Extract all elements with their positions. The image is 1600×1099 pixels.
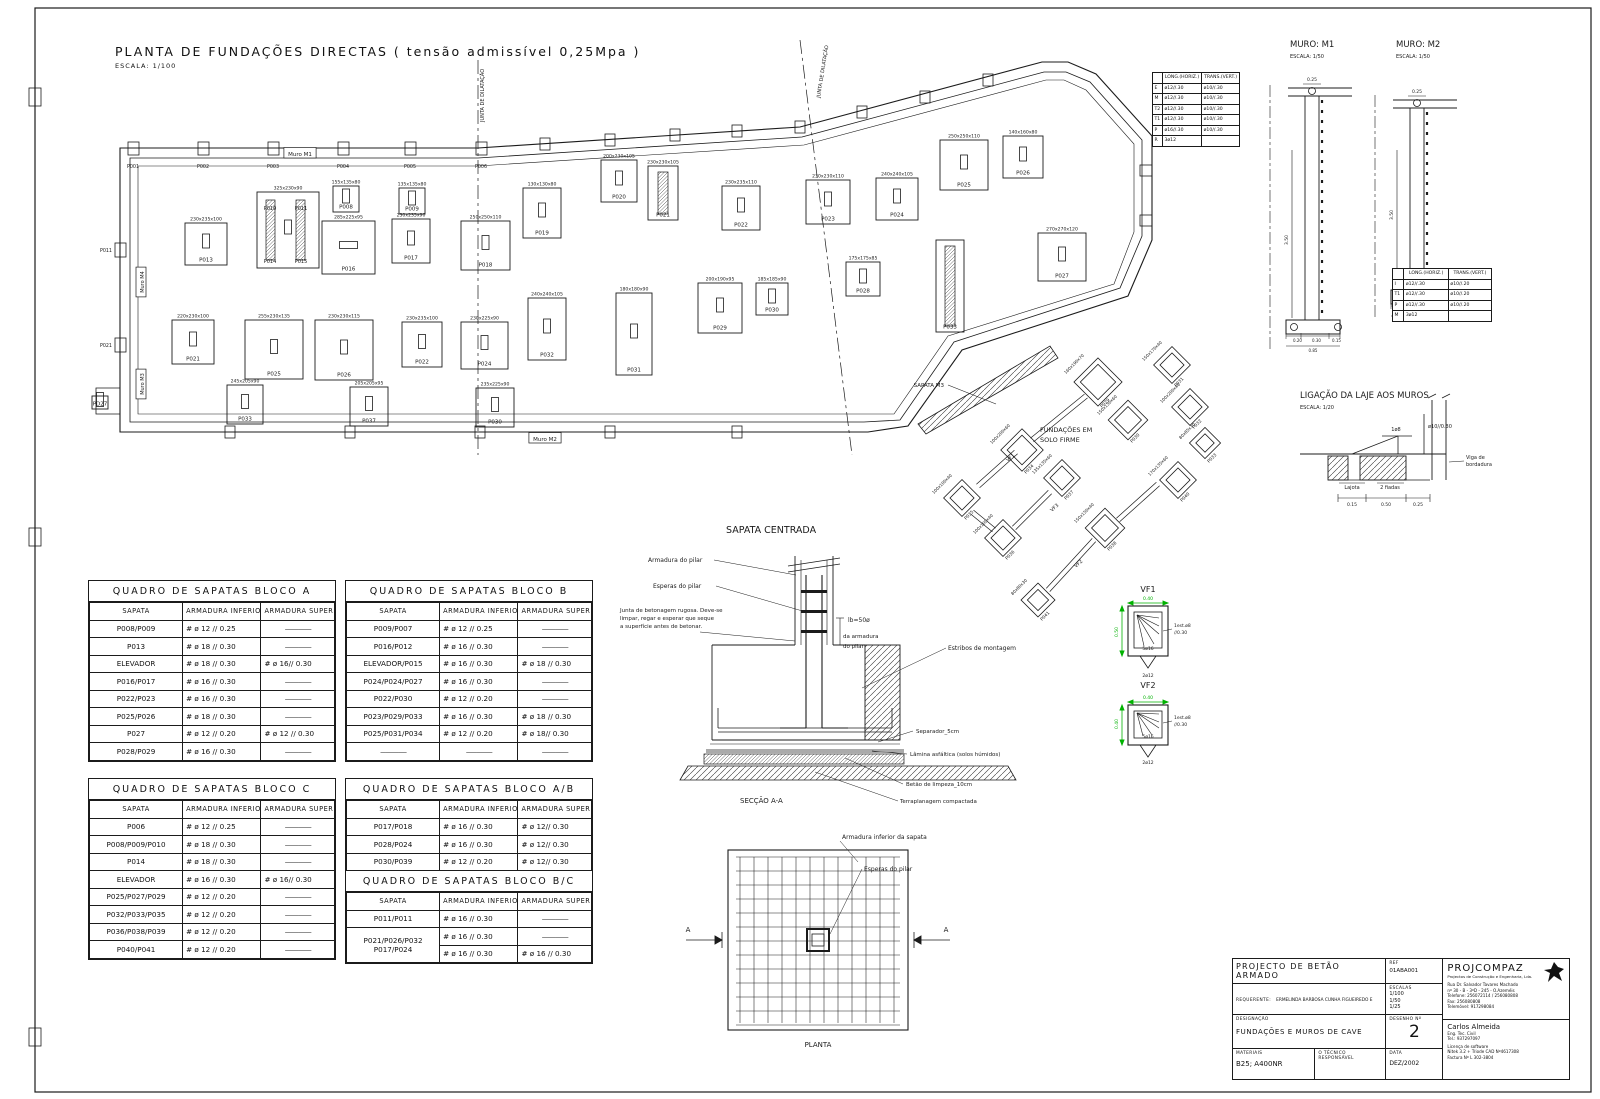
table-cell: # ø 12// 0.30	[518, 853, 592, 871]
column-mark	[242, 395, 249, 409]
pad-size-label: 135x135x80	[398, 182, 427, 188]
table-cell: # ø 12 // 0.20	[183, 923, 261, 941]
table-cell: # ø 12 // 0.20	[440, 853, 518, 871]
table-cell: ELEVADOR/P015	[347, 655, 440, 673]
diagonal-pad	[1172, 389, 1209, 426]
table-row: ELEVADOR# ø 16 // 0.30# ø 16// 0.30	[90, 871, 335, 889]
drawing-label: do pilar	[843, 644, 865, 650]
pad-size-label: 230x230x105	[647, 160, 679, 166]
boxed-label: Muro M4	[136, 267, 146, 297]
drawing-label: 0.50	[1381, 502, 1391, 508]
column-mark	[539, 203, 546, 217]
table-cell: M	[1153, 94, 1163, 105]
column-mark	[492, 398, 499, 412]
table-cell: # ø 16 // 0.30	[440, 673, 518, 691]
column-header: ARMADURA INFERIOR	[440, 603, 518, 621]
table-cell: ––––––––––	[261, 941, 335, 959]
diagonal-pad	[1044, 460, 1081, 497]
diagonal-pad	[1160, 462, 1197, 499]
table-cell: # ø 12 // 0.25	[440, 620, 518, 638]
boxed-label: Muro M2	[529, 433, 561, 444]
building-outline-inner	[138, 80, 1134, 414]
table-cell: ––––––––––	[440, 743, 518, 761]
table-cell: T2	[1153, 104, 1163, 115]
pad-size-label: 250x250x110	[470, 215, 502, 221]
column-mark	[1059, 247, 1066, 261]
table-row: P025/P031/P034# ø 12 // 0.20# ø 18// 0.3…	[347, 725, 592, 743]
column-header: TRANS.(VERT.)	[1202, 73, 1240, 84]
wall-pad-label: P011	[100, 248, 112, 254]
drawing-label: 0.25	[1413, 502, 1423, 508]
drawing-label: SAPATA CENTRADA	[726, 525, 817, 536]
line	[1050, 542, 1096, 592]
leader	[830, 869, 862, 934]
drawing-label: 3.50	[1389, 210, 1395, 220]
wall-pad-label: P001	[127, 164, 139, 170]
table-row: ––––––––––––––––––––––––––––––	[347, 743, 592, 761]
column-header: LONG.(HORIZ.)	[1162, 73, 1201, 84]
svg-text:Muro M4: Muro M4	[140, 271, 146, 293]
pad-label: P027	[1055, 274, 1069, 280]
poly	[1120, 740, 1124, 745]
rect	[801, 590, 827, 593]
column-header: ARMADURA SUPERIOR	[261, 801, 335, 819]
column-mark	[717, 298, 724, 312]
drawing-label: A	[944, 926, 949, 934]
table-cell: # ø 16 // 0.30	[518, 945, 592, 963]
table-cell: ø10//.30	[1202, 83, 1240, 94]
poly	[1163, 601, 1168, 605]
line	[788, 564, 840, 572]
drawing-label: VF2	[1073, 559, 1084, 570]
drawing-label: 2ø12	[1142, 673, 1153, 679]
table-cell: ø12//.30	[1162, 104, 1201, 115]
pad-label: P033	[943, 325, 957, 331]
diagonal-pad	[985, 520, 1022, 557]
table-cell: # ø 18 // 0.30	[183, 853, 261, 871]
leader	[716, 586, 806, 612]
table-row: P011/P011# ø 16 // 0.30––––––––––	[347, 910, 592, 928]
line	[1012, 490, 1048, 526]
project-title: PROJECTO DE BETÃO ARMADO	[1236, 962, 1382, 980]
ref-value: 01ABA001	[1389, 968, 1439, 974]
column-hatched	[658, 172, 668, 214]
pad-label: P009	[405, 207, 419, 213]
table-cell: ø12//.30	[1404, 279, 1449, 290]
column-mark	[894, 189, 901, 203]
pad-label: P008	[339, 205, 353, 211]
line	[788, 558, 840, 566]
wall-pad-label: P002	[197, 164, 209, 170]
pad-label: P037	[1063, 489, 1075, 501]
drawing-label: Estribos de montagem	[948, 645, 1016, 652]
table-cell: P013	[90, 638, 183, 656]
drawing-label: ø10//0.30	[1428, 424, 1452, 430]
column-mark	[285, 220, 292, 234]
pad-size-label: 80x80x30	[1010, 578, 1029, 597]
materiais-value: B25; A400NR	[1236, 1060, 1311, 1068]
line	[1428, 394, 1436, 398]
table-cell: P025/P027/P029	[90, 888, 183, 906]
drawing-label: PLANTA	[805, 1041, 832, 1049]
pad-size-label: 285x225x95	[334, 215, 363, 221]
leader	[714, 560, 796, 575]
table-cell	[1448, 311, 1491, 322]
drawing-label: SECÇÃO A-A	[740, 796, 783, 805]
boxed-label: Muro M3	[136, 369, 146, 399]
table-title: QUADRO DE SAPATAS BLOCO C	[89, 779, 335, 800]
table-cell: # ø 16 // 0.30	[440, 818, 518, 836]
pad-label: P041	[1039, 610, 1051, 622]
table-row: P014# ø 18 // 0.30––––––––––	[90, 853, 335, 871]
table-cell: ø10//.30	[1202, 104, 1240, 115]
marker-circle	[1291, 324, 1298, 331]
drawing-label: 0.15	[1332, 338, 1341, 343]
table-cell: ø10//.20	[1448, 279, 1491, 290]
table-row: R3ø12	[1153, 136, 1240, 147]
quadro-sapatas-bloco-a: QUADRO DE SAPATAS BLOCO ASAPATAARMADURA …	[88, 580, 336, 762]
drawing-label: VF3	[1049, 503, 1060, 514]
table-cell: # ø 16 // 0.30	[440, 945, 518, 963]
data-label: DATA	[1389, 1051, 1439, 1056]
table-cell: ELEVADOR	[90, 871, 183, 889]
column-mark	[340, 242, 358, 249]
poly	[1128, 601, 1133, 605]
table-cell: ––––––––––	[518, 620, 592, 638]
pad-label: P033	[238, 417, 252, 423]
drawing-label: 0.50	[1114, 627, 1120, 637]
requerente-label: REQUERENTE:	[1236, 998, 1271, 1003]
column-mark	[481, 336, 488, 350]
table-cell: ELEVADOR	[90, 655, 183, 673]
pad-size-label: 140x160x80	[1009, 130, 1038, 136]
table-cell: ø12//.30	[1404, 290, 1449, 301]
column-header: ARMADURA INFERIOR	[440, 801, 518, 819]
table-cell: P014	[90, 853, 183, 871]
table-cell: ––––––––––	[518, 910, 592, 928]
column-mark	[961, 155, 968, 169]
license-lines: Licença de softwareNitek 3.2 + Triode CA…	[1447, 1044, 1565, 1061]
drawing-label: 0.40	[1143, 596, 1153, 602]
table-row: ELEVADOR/P015# ø 16 // 0.30# ø 18 // 0.3…	[347, 655, 592, 673]
table-cell: # ø 16// 0.30	[261, 655, 335, 673]
table-cell: # ø 16 // 0.30	[440, 638, 518, 656]
desenho-cell: DESENHO Nº 2	[1385, 1015, 1442, 1048]
requerente-cell: REQUERENTE: ERMELINDA BARBOSA CUNHA FIGU…	[1233, 984, 1385, 1014]
column-mark	[271, 340, 278, 354]
table-cell: ø12//.30	[1162, 115, 1201, 126]
footing-pad	[616, 293, 652, 375]
table-cell: # ø 16 // 0.30	[183, 690, 261, 708]
table-row: Pø16//.30ø10//.30	[1153, 125, 1240, 136]
pad-label: P032	[540, 353, 554, 359]
pad-size-label: 235x225x90	[481, 382, 510, 388]
poly	[1128, 700, 1133, 704]
table-cell: # ø 12 // 0.20	[183, 906, 261, 924]
table-row: P040/P041# ø 12 // 0.20––––––––––	[90, 941, 335, 959]
wall-pad-label: P005	[404, 164, 416, 170]
pad-label: P021	[656, 213, 670, 219]
pad-size-label: 230x230x110	[812, 174, 844, 180]
column-hatched	[945, 246, 955, 326]
table-cell: ––––––––––	[261, 690, 335, 708]
table-cell: # ø 12// 0.30	[518, 818, 592, 836]
pad-size-label: 230x235x100	[406, 316, 438, 322]
table-cell: E	[1153, 83, 1163, 94]
table-cell: T1	[1393, 290, 1404, 301]
column-header: SAPATA	[90, 603, 183, 621]
column-header	[1393, 269, 1404, 280]
pad-label: P018	[479, 263, 493, 269]
table-row: P013# ø 18 // 0.30––––––––––	[90, 638, 335, 656]
drawing-label: VF1	[1005, 453, 1016, 464]
drawing-label: 3.50	[1284, 235, 1290, 245]
table-cell: M	[1393, 311, 1404, 322]
projcompaz-logo-icon	[1542, 961, 1566, 985]
column-mark	[482, 236, 489, 250]
table-row: P023/P029/P033# ø 16 // 0.30# ø 18 // 0.…	[347, 708, 592, 726]
table-row: T1ø12//.30ø10//.20	[1393, 290, 1492, 301]
pad-label: P026	[1016, 171, 1030, 177]
text-line: Telemóvel: 917298084	[1447, 1004, 1565, 1010]
pad-size-label: 230x230x115	[328, 314, 360, 320]
table-cell: P024/P024/P027	[347, 673, 440, 691]
pad-size-label: 230x225x90	[470, 316, 499, 322]
pad-size-label: 240x240x105	[531, 292, 563, 298]
table-cell: ––––––––––	[261, 743, 335, 761]
table-row: P016/P017# ø 16 // 0.30––––––––––	[90, 673, 335, 691]
table-cell: P036/P038/P039	[90, 923, 183, 941]
table-cell: P021/P026/P032 P017/P024	[347, 928, 440, 963]
table-cell: # ø 16 // 0.30	[440, 910, 518, 928]
column-header: ARMADURA SUPERIOR	[261, 603, 335, 621]
wall-pad-label: P006	[475, 164, 487, 170]
pad-label: P029	[713, 326, 727, 332]
table-cell: ø16//.30	[1162, 125, 1201, 136]
line	[1116, 482, 1156, 518]
table-cell	[1202, 136, 1240, 147]
pad-size-label: 200x190x95	[706, 277, 735, 283]
column-header: TRANS.(VERT.)	[1448, 269, 1491, 280]
table-cell: I	[1393, 279, 1404, 290]
rect	[1286, 320, 1340, 334]
table-cell: P028/P024	[347, 836, 440, 854]
rect	[812, 934, 824, 946]
pad-size-label: 175x175x85	[849, 256, 878, 262]
table-title: QUADRO DE SAPATAS BLOCO B	[346, 581, 592, 602]
drawing-label: 0.25	[1412, 89, 1422, 95]
line	[1137, 615, 1144, 646]
table-row: Pø12//.30ø10//.20	[1393, 300, 1492, 311]
table-row: P024/P024/P027# ø 16 // 0.30––––––––––	[347, 673, 592, 691]
designacao-value: FUNDAÇÕES E MUROS DE CAVE	[1236, 1028, 1382, 1036]
line	[1016, 494, 1052, 530]
table-row: Iø12//.30ø10//.20	[1393, 279, 1492, 290]
table-cell: # ø 16 // 0.30	[183, 743, 261, 761]
table-cell: # ø 12 // 0.25	[183, 620, 261, 638]
soil-hatch	[865, 645, 900, 740]
column-mark	[738, 198, 745, 212]
table-row: P016/P012# ø 16 // 0.30––––––––––	[347, 638, 592, 656]
text-line: Factura Nº L 302-3804	[1447, 1055, 1565, 1061]
drawing-label: 5ø16	[1142, 646, 1153, 652]
pad-size-label: 130x130x80	[528, 182, 557, 188]
pad-label: P017	[404, 256, 418, 262]
table-row: P017/P018# ø 16 // 0.30# ø 12// 0.30	[347, 818, 592, 836]
pad-label: P030	[488, 420, 502, 426]
table-row: Mø12//.30ø10//.30	[1153, 94, 1240, 105]
wall-footing-strip	[918, 346, 1058, 434]
pad-label: P025	[267, 372, 281, 378]
pad-label: P028	[856, 289, 870, 295]
line	[1120, 486, 1160, 522]
table-cell: P006	[90, 818, 183, 836]
plan-title-block: PLANTA DE FUNDAÇÕES DIRECTAS ( tensão ad…	[115, 44, 640, 70]
svg-text:Muro M3: Muro M3	[140, 373, 146, 395]
pad-label: P033	[1206, 452, 1218, 464]
drawing-label: Esperas do pilar	[653, 583, 702, 590]
drawing-label: //0.30	[1174, 630, 1187, 636]
pad-label: P013	[199, 258, 213, 264]
poly	[1163, 700, 1168, 704]
materiais-label: MATERIAIS	[1236, 1051, 1311, 1056]
table-cell: P032/P033/P035	[90, 906, 183, 924]
diagonal-pad	[1085, 508, 1125, 548]
table-cell: ––––––––––	[518, 690, 592, 708]
drawing-label: SOLO FIRME	[1040, 436, 1080, 444]
drawing-label: Lâmina asfáltica (solos húmidos)	[910, 751, 1000, 758]
pad-label: P036	[1004, 549, 1016, 561]
table-row: Eø12//.30ø10//.30	[1153, 83, 1240, 94]
drawing-label: VF1	[1140, 585, 1155, 594]
rect	[1328, 456, 1348, 480]
pad-label: P024	[478, 362, 492, 368]
pad-size-label: 230x235x90	[397, 213, 426, 219]
table-cell: P	[1153, 125, 1163, 136]
pad-label: P040	[1179, 491, 1191, 503]
table-cell: # ø 12 // 0.20	[440, 725, 518, 743]
column-header: SAPATA	[347, 801, 440, 819]
column-mark	[341, 340, 348, 354]
muro-m2-rebar-table: LONG.(HORIZ.)TRANS.(VERT.)Iø12//.30ø10//…	[1392, 268, 1492, 322]
table-cell: # ø 18 // 0.30	[183, 638, 261, 656]
table-cell: # ø 12// 0.30	[518, 836, 592, 854]
table-cell: 3ø12	[1162, 136, 1201, 147]
pad-size-label: 230x235x100	[190, 217, 222, 223]
drawing-label: ESCALA: 1/20	[1300, 405, 1334, 411]
column-mark	[343, 189, 350, 203]
column-mark	[631, 324, 638, 338]
engineer-phone: Tel.: 937297097	[1447, 1036, 1565, 1042]
table-cell: ––––––––––	[261, 836, 335, 854]
table-row: P030/P039# ø 12 // 0.20# ø 12// 0.30	[347, 853, 592, 871]
pad-size-label: 180x180x90	[620, 287, 649, 293]
table-cell: P016/P017	[90, 673, 183, 691]
table-cell: P011/P011	[347, 910, 440, 928]
table-row: ELEVADOR# ø 18 // 0.30# ø 16// 0.30	[90, 655, 335, 673]
table-cell: # ø 12 // 0.25	[183, 818, 261, 836]
page-title: PLANTA DE FUNDAÇÕES DIRECTAS ( tensão ad…	[115, 44, 640, 59]
poly	[914, 936, 921, 944]
table-cell: ––––––––––	[261, 673, 335, 691]
drawing-label: A	[686, 926, 691, 934]
table-cell: ø10//.20	[1448, 290, 1491, 301]
drawing-label: 0.30	[1312, 338, 1321, 343]
designacao-label: DESIGNAÇÃO	[1236, 1017, 1382, 1022]
diagonal-pad	[1154, 347, 1191, 384]
column-mark	[1020, 147, 1027, 161]
pad-label: P037	[362, 419, 376, 425]
column-mark	[616, 171, 623, 185]
table-row: P028/P029# ø 16 // 0.30––––––––––	[90, 743, 335, 761]
table-cell: P009/P007	[347, 620, 440, 638]
drawing-label: MURO: M2	[1396, 40, 1440, 50]
title-block: PROJECTO DE BETÃO ARMADO REF 01ABA001 RE…	[1232, 958, 1570, 1080]
poly	[1120, 651, 1124, 656]
quadro-sapatas-bloco-b: QUADRO DE SAPATAS BLOCO BSAPATAARMADURA …	[345, 580, 593, 762]
svg-text:Muro M1: Muro M1	[288, 152, 312, 158]
table-cell: # ø 12 // 0.20	[440, 690, 518, 708]
tecnico-label: O TÉCNICO RESPONSÁVEL	[1318, 1051, 1382, 1061]
drawing-label: ESCALA: 1/50	[1396, 54, 1430, 60]
table-row: P027# ø 12 // 0.20# ø 12 // 0.30	[90, 725, 335, 743]
pad-label: P020	[612, 195, 626, 201]
table-cell: ø12//.30	[1162, 83, 1201, 94]
column-header: SAPATA	[347, 603, 440, 621]
table-cell: # ø 12 // 0.30	[261, 725, 335, 743]
table-cell: ––––––––––	[518, 638, 592, 656]
column-mark	[408, 231, 415, 245]
poly	[715, 936, 722, 944]
drawing-label: 2ø12	[1142, 760, 1153, 766]
table-cell: ––––––––––	[261, 853, 335, 871]
table-cell: # ø 12 // 0.20	[183, 725, 261, 743]
pad-size-label: 185x185x90	[758, 277, 787, 283]
expansion-joint-line	[800, 40, 852, 455]
column-mark	[769, 289, 776, 303]
table-cell: # ø 18 // 0.30	[183, 836, 261, 854]
pad-label: P022	[734, 223, 748, 229]
table-cell: # ø 16 // 0.30	[440, 708, 518, 726]
drawing-label: 0.20	[1293, 338, 1302, 343]
wall-pad	[857, 106, 867, 118]
footing-pad	[528, 298, 566, 360]
drawing-label: Armadura inferior da sapata	[842, 834, 927, 841]
table-cell: # ø 16 // 0.30	[183, 673, 261, 691]
rect	[1360, 456, 1406, 480]
drawing-label: 2 fiadas	[1380, 485, 1400, 491]
drawing-label: 0.40	[1143, 695, 1153, 701]
drawing-label: Esperas do pilar	[864, 866, 913, 873]
pad-size-label: 200x230x105	[603, 154, 635, 160]
data-cell: DATA DEZ/2002	[1385, 1049, 1442, 1079]
pad-label: P026	[337, 373, 351, 379]
column-mark	[366, 397, 373, 411]
pad-label: P019	[535, 231, 549, 237]
drawing-label: P011	[295, 206, 308, 212]
table-cell: P028/P029	[90, 743, 183, 761]
leader	[872, 751, 907, 754]
rect	[728, 850, 908, 1030]
table-cell: ø12//.30	[1162, 94, 1201, 105]
boxed-label: Muro M1	[284, 148, 316, 159]
page-scale: ESCALA: 1/100	[115, 62, 640, 70]
table-cell: ––––––––––	[261, 906, 335, 924]
pad-size-label: 100x200x60	[989, 423, 1011, 445]
engineer-name: Carlos Almeida	[1447, 1023, 1565, 1031]
table-cell: ––––––––––	[261, 923, 335, 941]
table-cell: # ø 18 // 0.30	[183, 655, 261, 673]
